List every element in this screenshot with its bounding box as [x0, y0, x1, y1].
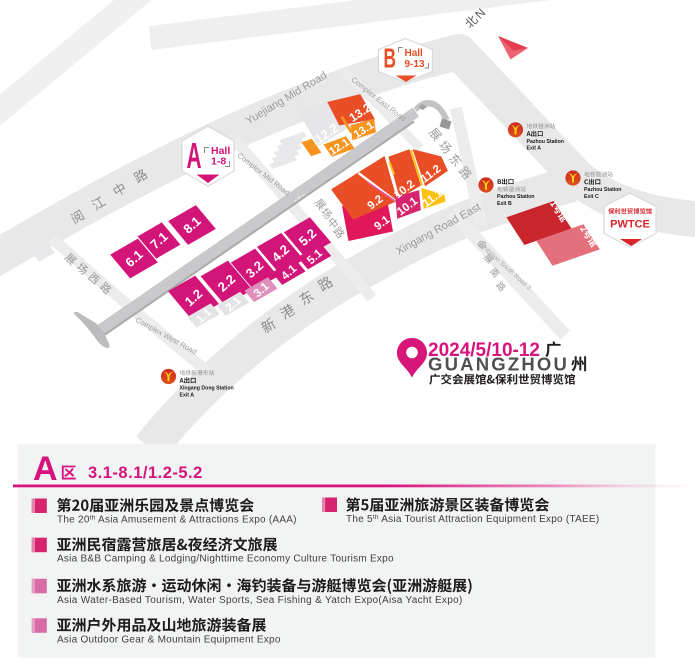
svg-text:A: A [33, 450, 58, 488]
svg-text:B: B [384, 43, 397, 74]
svg-text:Pazhou Station: Pazhou Station [497, 194, 534, 200]
svg-text:3.1-8.1/1.2-5.2: 3.1-8.1/1.2-5.2 [88, 464, 203, 482]
svg-text:Asia Outdoor Gear & Mountain E: Asia Outdoor Gear & Mountain Equipment E… [57, 634, 281, 645]
svg-text:GUANGZHOU: GUANGZHOU [428, 354, 569, 375]
svg-text:The 5th Asia Tourist Attractio: The 5th Asia Tourist Attraction Equipmen… [346, 514, 599, 525]
svg-text:Exit A: Exit A [180, 392, 195, 398]
svg-text:Pazhou Station: Pazhou Station [527, 139, 564, 145]
svg-text:1-8: 1-8 [211, 156, 226, 168]
svg-text:Exit C: Exit C [584, 194, 599, 200]
svg-text:9-13: 9-13 [405, 59, 425, 70]
svg-text:Xingang Dong Station: Xingang Dong Station [180, 386, 234, 392]
svg-text:Pazhou Station: Pazhou Station [584, 187, 621, 193]
svg-text:Hall: Hall [405, 48, 424, 59]
svg-text:PWTCE: PWTCE [610, 219, 650, 231]
svg-text:Exit A: Exit A [527, 146, 542, 152]
svg-text:Asia B&B Camping & Lodging/Nig: Asia B&B Camping & Lodging/Nighttime Eco… [57, 554, 394, 565]
svg-text:A: A [187, 135, 202, 176]
svg-text:Exit B: Exit B [497, 201, 512, 207]
svg-text:Asia Water-Based Tourism, Wa: Asia Water-Based Tourism, Water Sports, … [57, 595, 463, 606]
